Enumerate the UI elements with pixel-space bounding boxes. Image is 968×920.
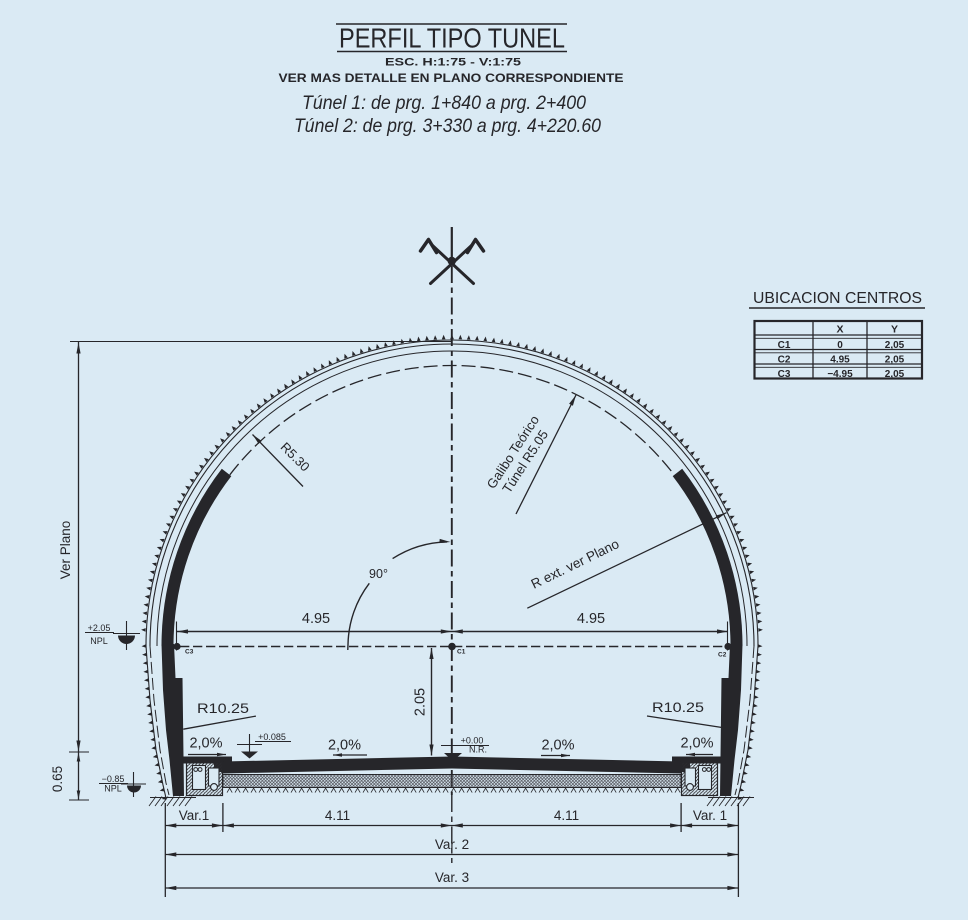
svg-text:Ver Plano: Ver Plano: [58, 521, 73, 580]
svg-text:−4.95: −4.95: [827, 369, 853, 380]
svg-text:C3: C3: [185, 649, 194, 656]
svg-text:2,0%: 2,0%: [680, 736, 713, 752]
svg-text:4.11: 4.11: [554, 808, 579, 823]
svg-text:Var. 3: Var. 3: [435, 870, 469, 885]
svg-text:Túnel 2: de prg. 3+330 a prg.: Túnel 2: de prg. 3+330 a prg. 4+220.60: [294, 115, 601, 137]
svg-text:UBICACION CENTROS: UBICACION CENTROS: [753, 290, 922, 307]
svg-text:NPL: NPL: [104, 784, 122, 794]
svg-text:+0.085: +0.085: [258, 732, 286, 742]
svg-text:VER MAS DETALLE EN PLANO CORRE: VER MAS DETALLE EN PLANO CORRESPONDIENTE: [279, 73, 624, 85]
svg-text:Y: Y: [891, 324, 898, 336]
svg-text:2.05: 2.05: [413, 688, 429, 716]
svg-text:X: X: [836, 324, 843, 336]
svg-text:C1: C1: [457, 649, 466, 656]
svg-text:Var. 2: Var. 2: [435, 837, 469, 852]
svg-text:+2.05: +2.05: [88, 623, 111, 633]
svg-text:C3: C3: [778, 369, 791, 380]
svg-text:C1: C1: [778, 340, 791, 351]
svg-text:4.95: 4.95: [830, 355, 850, 366]
svg-text:C2: C2: [778, 355, 791, 366]
svg-text:PERFIL TIPO TUNEL: PERFIL TIPO TUNEL: [339, 23, 565, 54]
svg-text:Var. 1: Var. 1: [693, 808, 727, 823]
svg-text:0: 0: [837, 340, 843, 351]
svg-text:4.11: 4.11: [325, 808, 350, 823]
svg-text:NPL: NPL: [90, 636, 108, 646]
svg-text:4.95: 4.95: [577, 611, 605, 627]
svg-text:−0.85: −0.85: [102, 774, 125, 784]
svg-text:4.95: 4.95: [302, 611, 330, 627]
svg-text:R10.25: R10.25: [197, 701, 249, 716]
svg-text:2,05: 2,05: [885, 340, 905, 351]
svg-text:2,0%: 2,0%: [541, 738, 574, 754]
svg-text:ESC. H:1:75 - V:1:75: ESC. H:1:75 - V:1:75: [385, 57, 521, 69]
svg-text:90°: 90°: [369, 567, 388, 581]
svg-text:2,05: 2,05: [885, 355, 905, 366]
svg-text:2,0%: 2,0%: [328, 738, 361, 754]
svg-text:N.R.: N.R.: [469, 745, 487, 755]
svg-text:2,0%: 2,0%: [189, 736, 222, 752]
svg-text:2,05: 2,05: [885, 369, 905, 380]
svg-text:0.65: 0.65: [50, 766, 65, 792]
svg-text:R10.25: R10.25: [652, 700, 704, 715]
svg-text:Var.1: Var.1: [179, 808, 210, 823]
svg-text:Túnel 1: de prg. 1+840 a prg.: Túnel 1: de prg. 1+840 a prg. 2+400: [302, 92, 586, 114]
svg-text:C2: C2: [718, 652, 727, 659]
